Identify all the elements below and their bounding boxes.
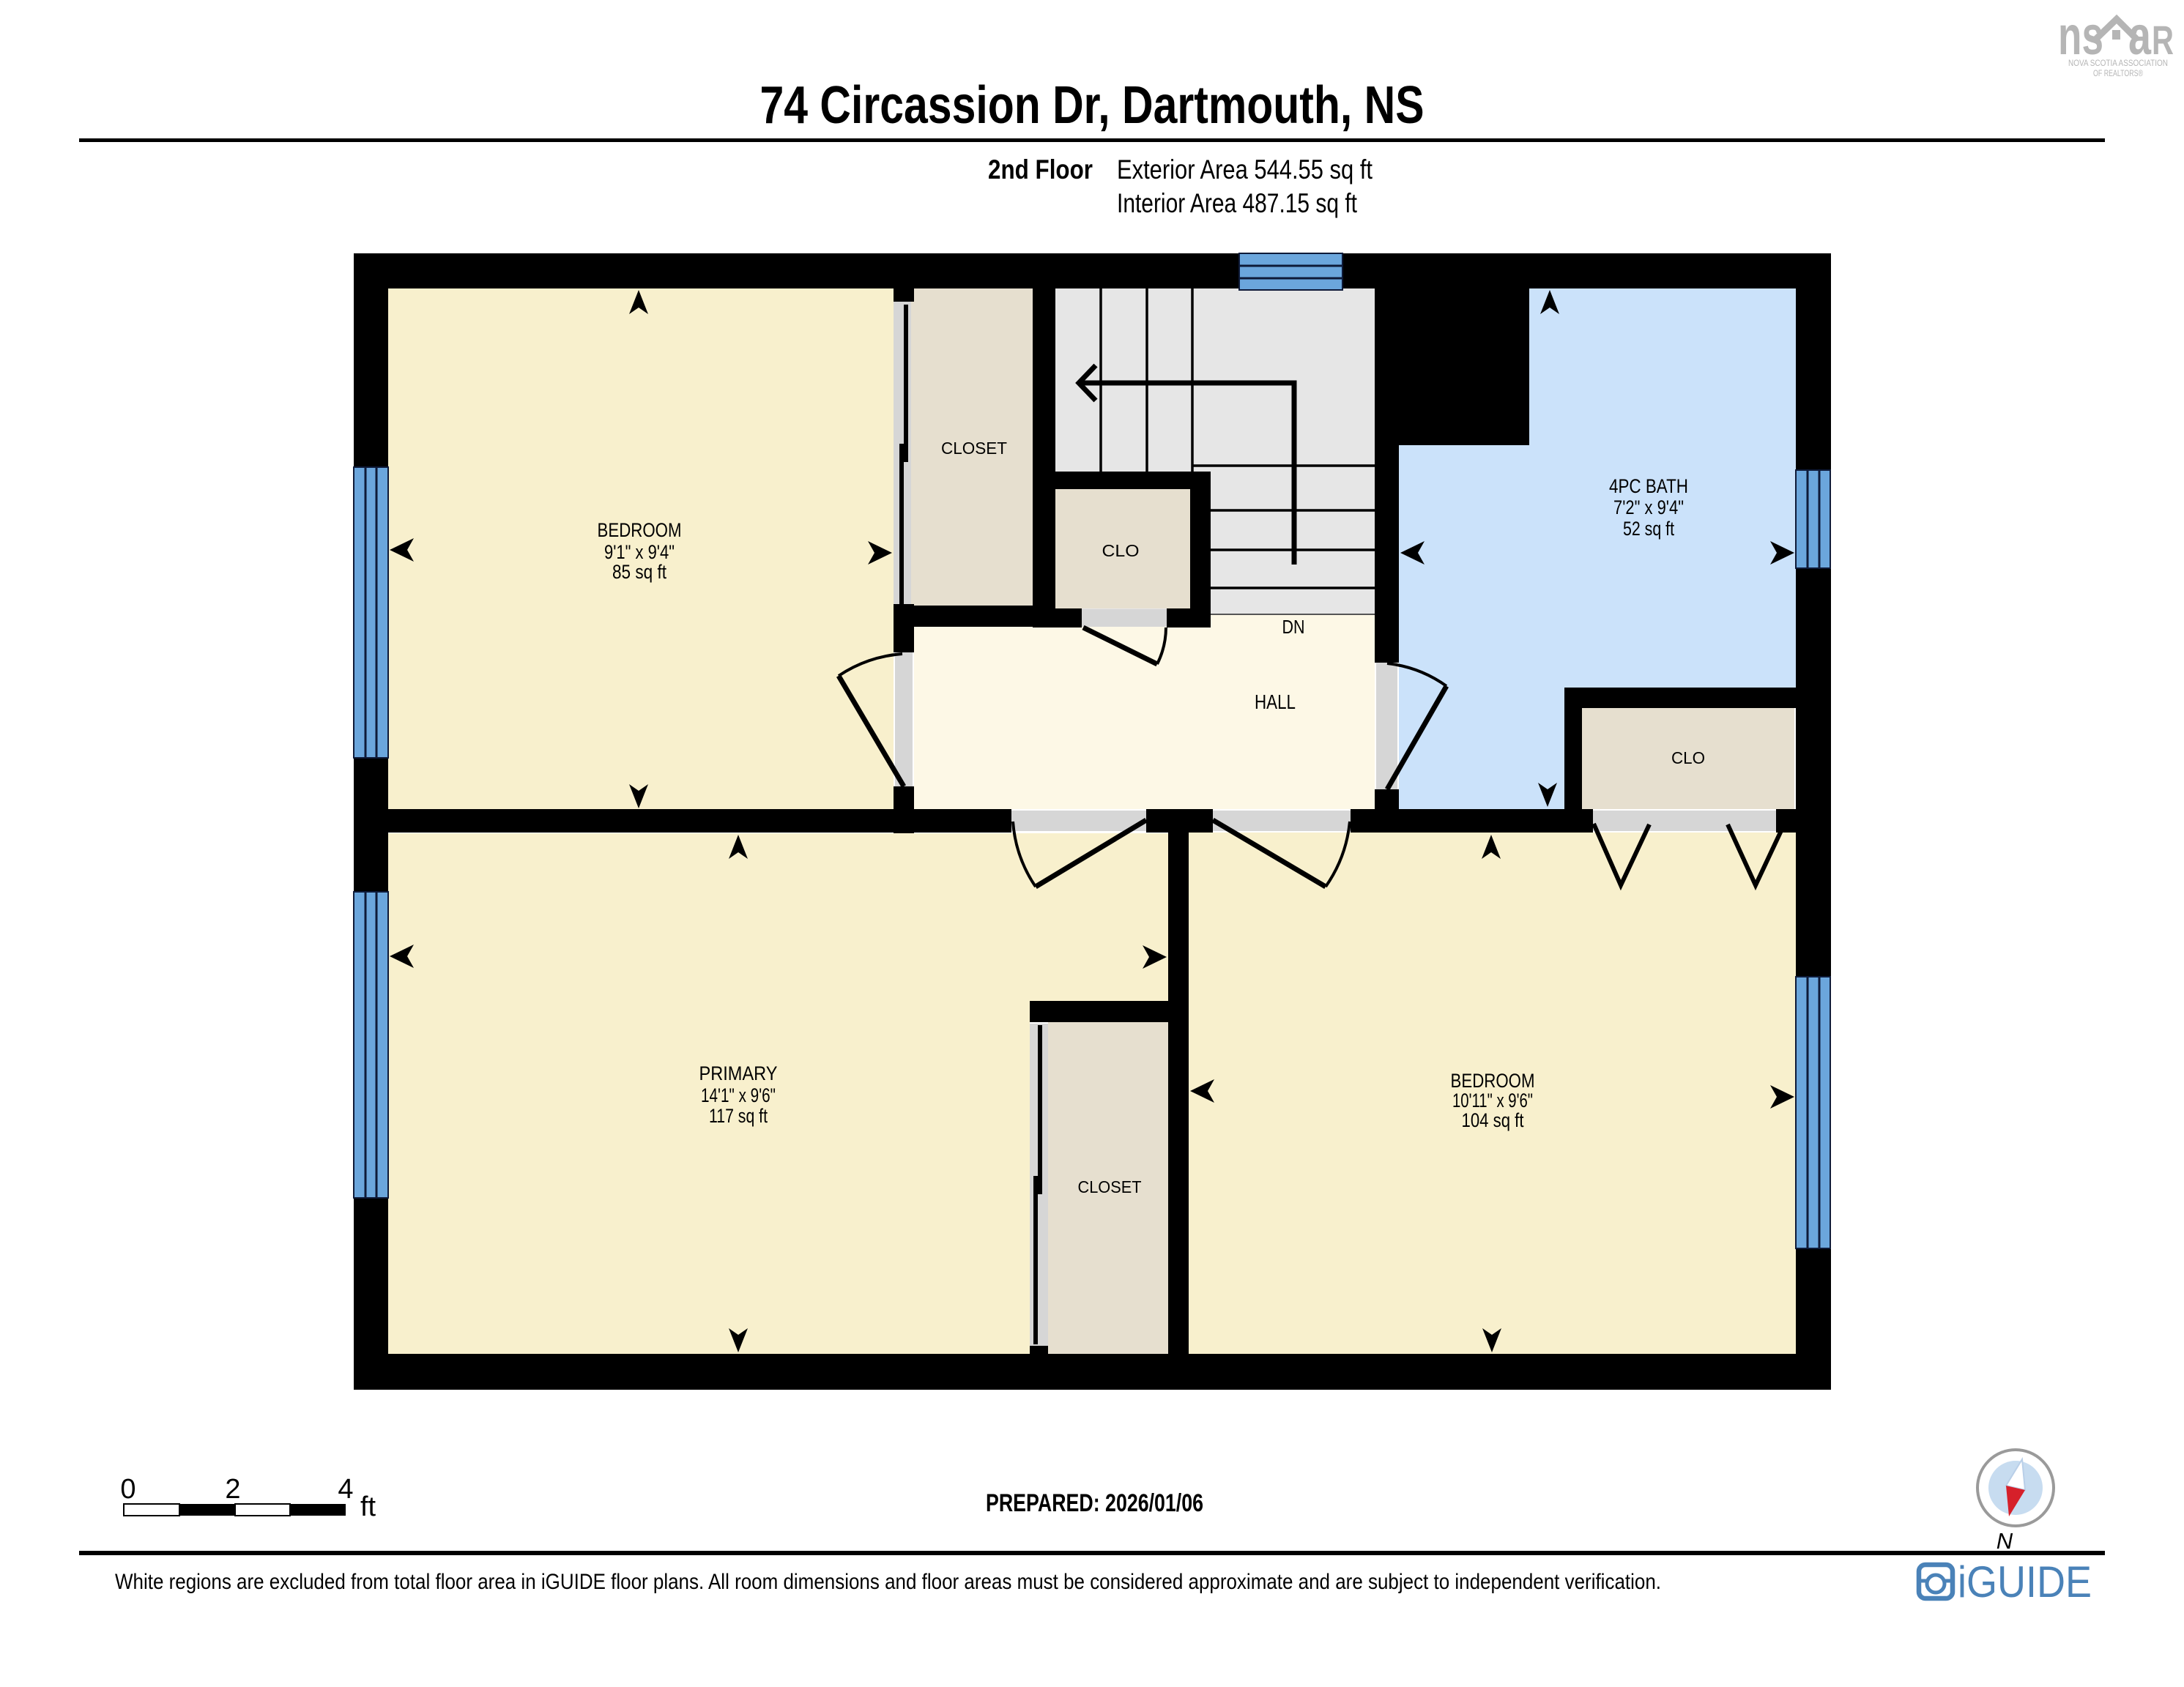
svg-text:74 Circassion Dr, Dartmouth, N: 74 Circassion Dr, Dartmouth, NS xyxy=(760,76,1425,135)
svg-text:Exterior Area 544.55 sq ft: Exterior Area 544.55 sq ft xyxy=(1117,154,1373,185)
svg-text:DN: DN xyxy=(1282,616,1305,638)
svg-text:CLOSET: CLOSET xyxy=(1078,1177,1142,1196)
svg-text:Interior Area 487.15 sq ft: Interior Area 487.15 sq ft xyxy=(1117,188,1358,218)
svg-text:2nd Floor: 2nd Floor xyxy=(988,154,1093,185)
svg-text:BEDROOM: BEDROOM xyxy=(598,519,682,541)
svg-text:4PC BATH: 4PC BATH xyxy=(1609,475,1688,497)
svg-text:10'11" x 9'6": 10'11" x 9'6" xyxy=(1452,1090,1533,1111)
svg-text:NOVA SCOTIA ASSOCIATION: NOVA SCOTIA ASSOCIATION xyxy=(2068,58,2168,68)
svg-text:White regions are excluded fro: White regions are excluded from total fl… xyxy=(115,1570,1661,1594)
svg-text:ft: ft xyxy=(360,1492,376,1522)
svg-text:9'1" x 9'4": 9'1" x 9'4" xyxy=(604,541,675,563)
svg-text:R: R xyxy=(2152,17,2174,63)
svg-text:0: 0 xyxy=(120,1474,135,1505)
svg-text:PRIMARY: PRIMARY xyxy=(699,1062,778,1084)
svg-text:BEDROOM: BEDROOM xyxy=(1451,1070,1535,1092)
svg-text:85 sq ft: 85 sq ft xyxy=(612,561,666,583)
svg-text:PREPARED: 2026/01/06: PREPARED: 2026/01/06 xyxy=(986,1489,1203,1517)
svg-text:4: 4 xyxy=(338,1474,353,1505)
svg-text:CLOSET: CLOSET xyxy=(941,439,1007,458)
svg-text:HALL: HALL xyxy=(1255,690,1296,713)
svg-text:7'2" x 9'4": 7'2" x 9'4" xyxy=(1613,496,1684,518)
svg-text:14'1" x 9'6": 14'1" x 9'6" xyxy=(701,1084,776,1106)
svg-text:52 sq ft: 52 sq ft xyxy=(1623,518,1674,540)
svg-text:OF REALTORS®: OF REALTORS® xyxy=(2093,68,2143,78)
svg-text:CLO: CLO xyxy=(1102,541,1140,560)
svg-text:iGUIDE: iGUIDE xyxy=(1958,1557,2092,1606)
svg-text:CLO: CLO xyxy=(1671,748,1705,767)
svg-text:2: 2 xyxy=(225,1474,240,1505)
svg-text:104 sq ft: 104 sq ft xyxy=(1462,1109,1524,1131)
svg-text:117 sq ft: 117 sq ft xyxy=(709,1105,768,1127)
svg-text:N: N xyxy=(1997,1528,2013,1554)
